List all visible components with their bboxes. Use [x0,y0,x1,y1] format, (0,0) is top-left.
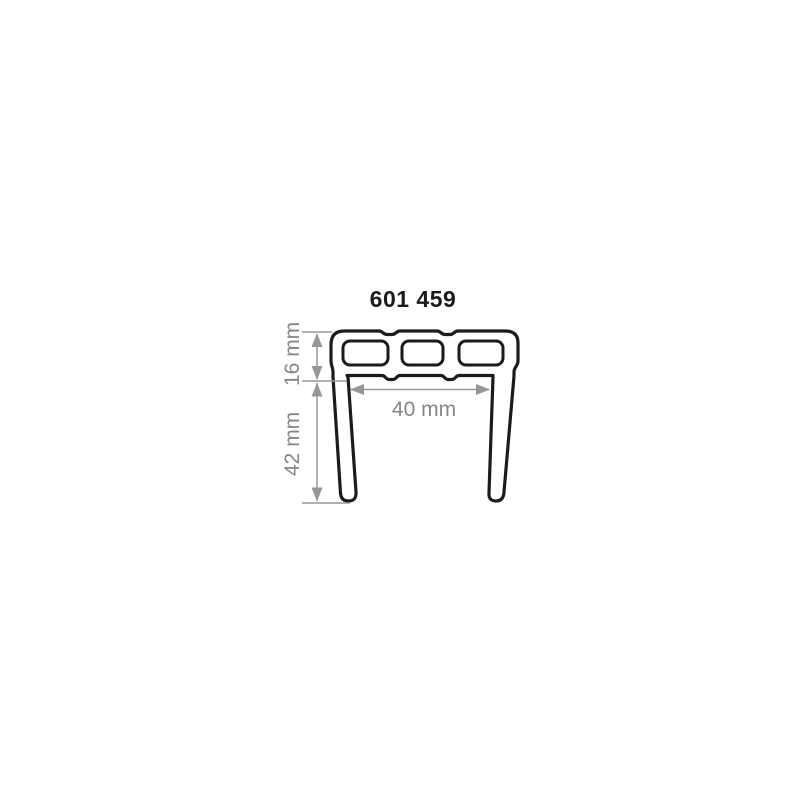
profile-hole-right [459,341,503,365]
dimension-label-40mm: 40 mm [392,398,456,421]
arrow-up-icon [312,333,323,347]
dimension-label-16mm: 16 mm [281,322,304,386]
diagram-canvas: 601 459 16 mm 42 mm 40 [0,0,800,800]
dimension-label-42mm: 42 mm [281,412,304,476]
arrow-down-icon [312,366,323,380]
profile-diagram: 601 459 16 mm 42 mm 40 [0,0,800,800]
arrow-right-icon [476,384,490,395]
part-number-label: 601 459 [370,286,457,312]
arrow-down-icon [312,488,323,502]
dimension-40mm: 40 mm [350,384,490,421]
profile-hole-left [343,341,388,365]
arrow-up-icon [312,383,323,397]
arrow-left-icon [350,384,364,395]
profile-hole-middle [402,341,443,365]
